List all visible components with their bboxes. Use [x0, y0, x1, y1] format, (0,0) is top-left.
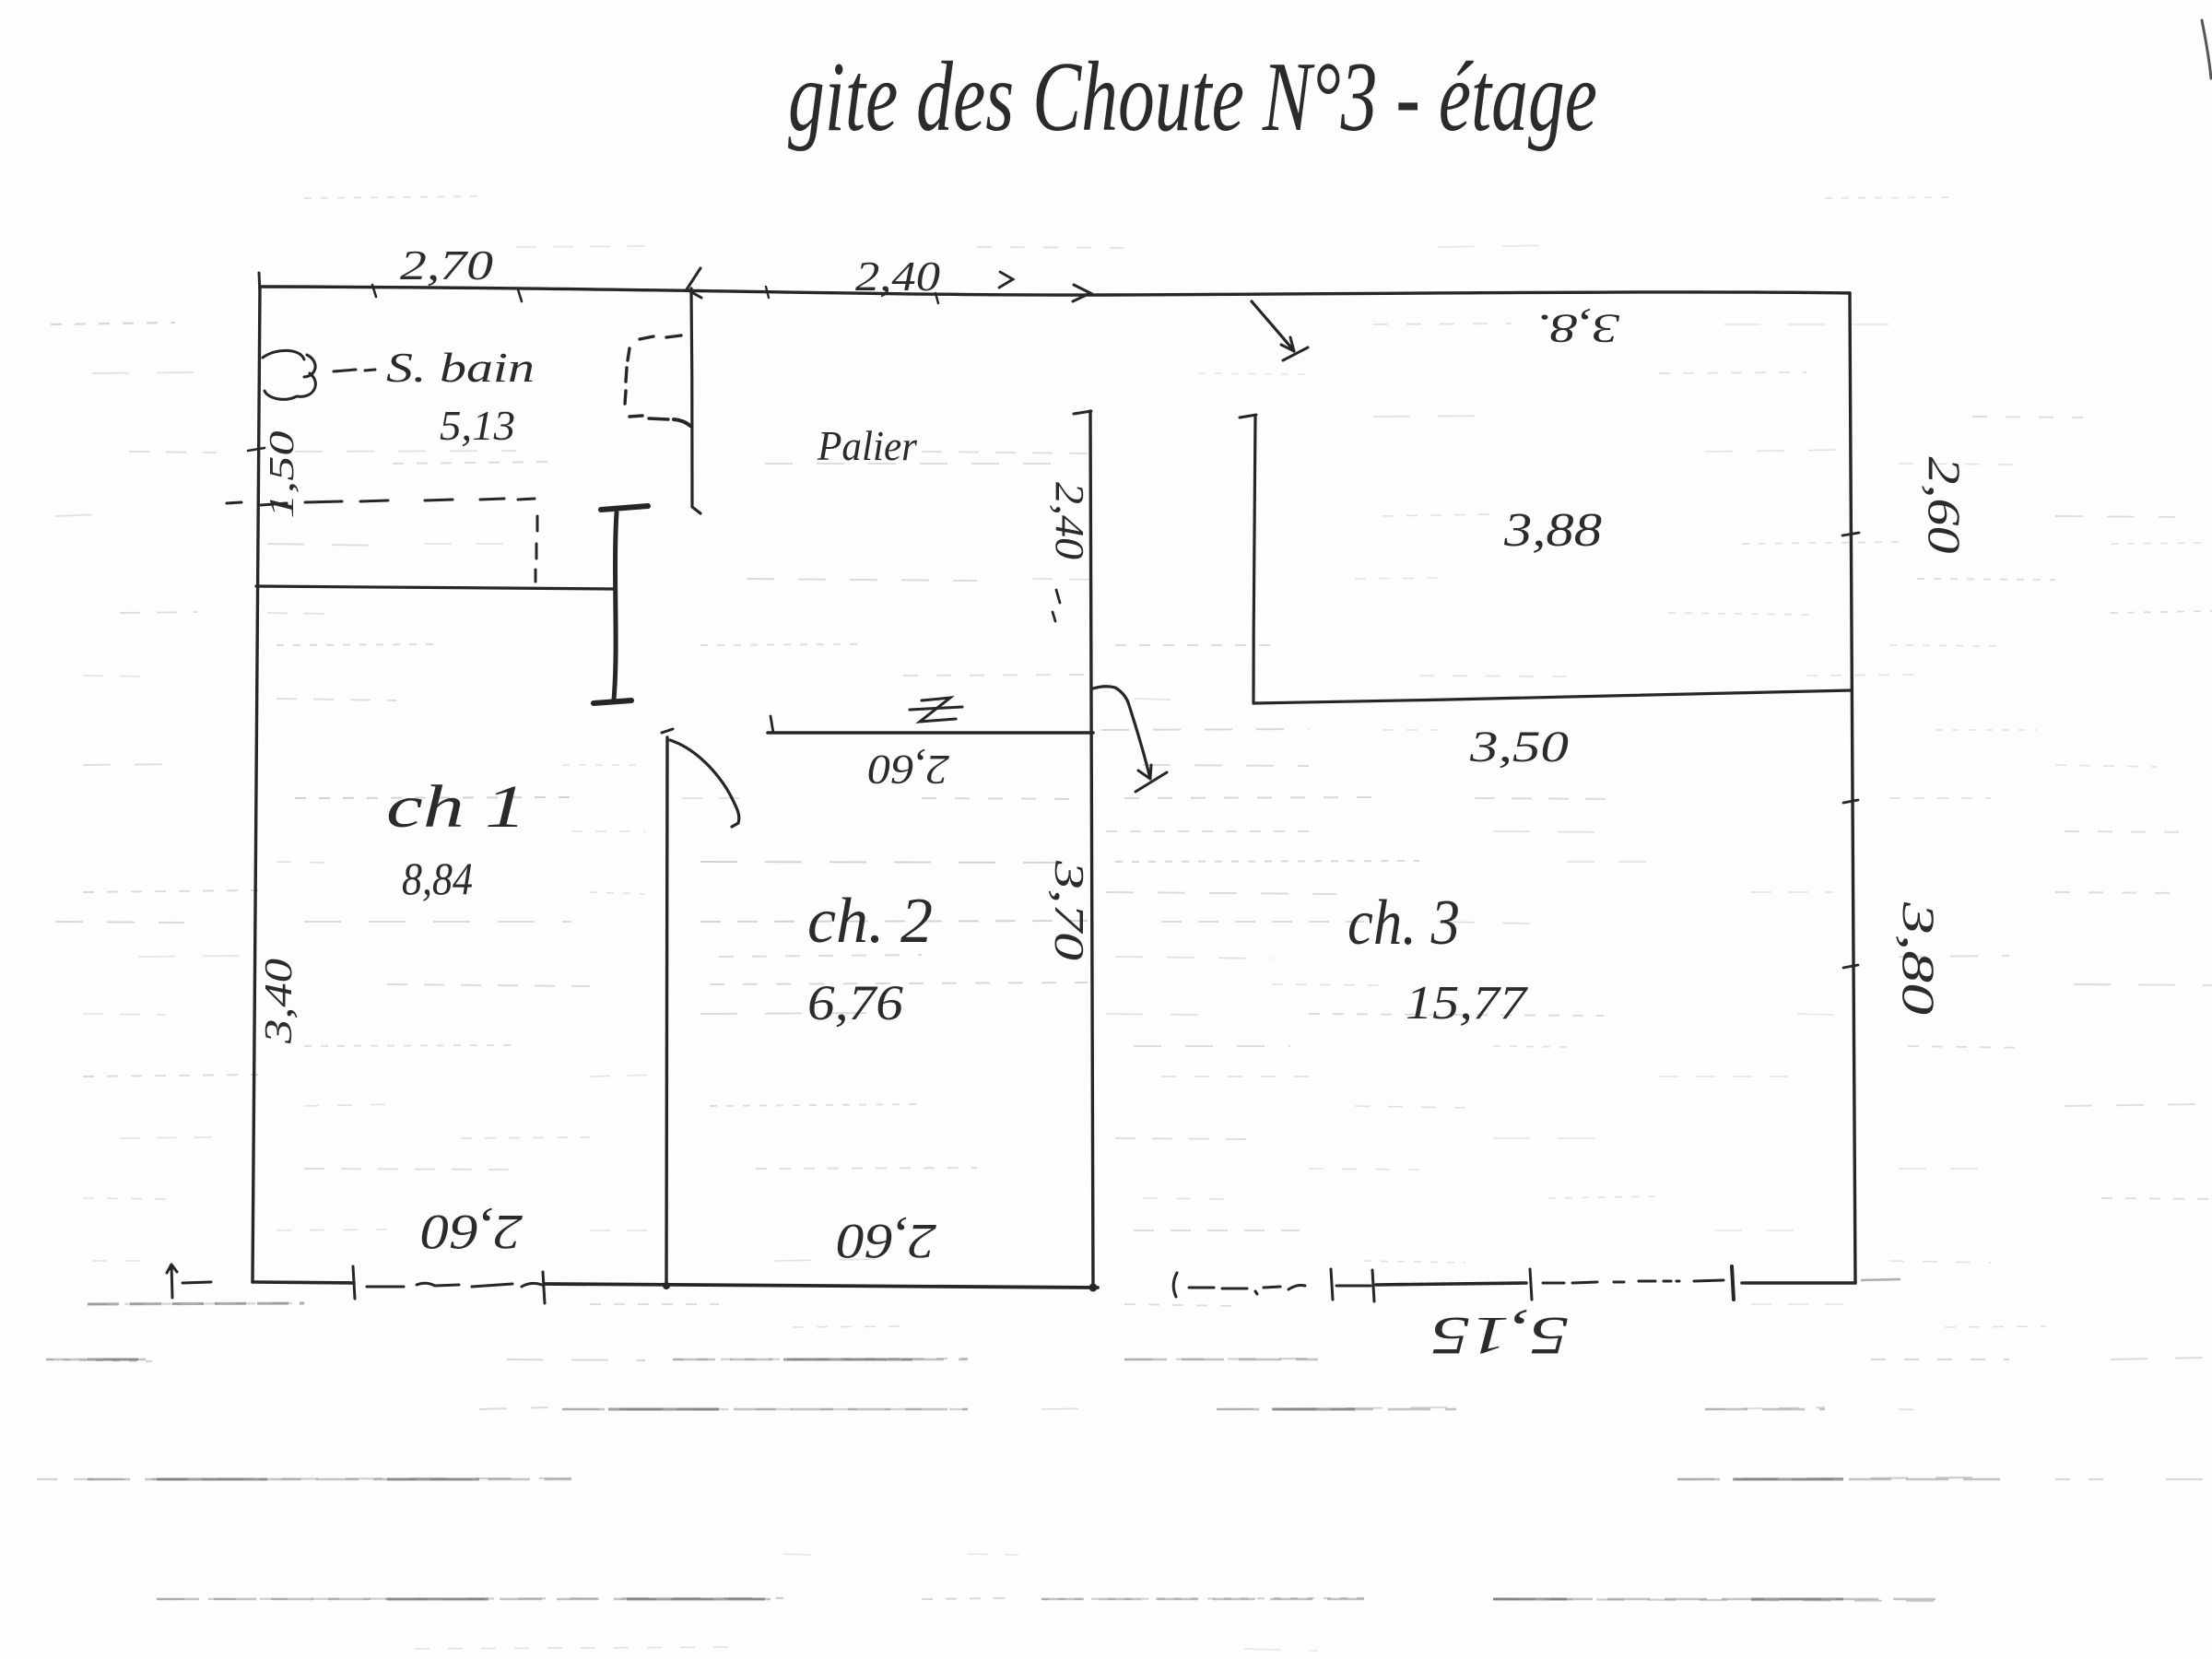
- svg-text:3,40: 3,40: [258, 959, 300, 1044]
- svg-text:3,88: 3,88: [1503, 504, 1602, 557]
- svg-text:8,84: 8,84: [402, 853, 473, 904]
- svg-text:ch 1: ch 1: [386, 773, 526, 841]
- svg-text:ch. 2: ch. 2: [807, 886, 933, 957]
- svg-text:2,60: 2,60: [1919, 457, 1971, 554]
- svg-text:15,77: 15,77: [1406, 977, 1528, 1030]
- svg-text:Palier: Palier: [817, 422, 918, 469]
- svg-text:ch. 3: ch. 3: [1347, 888, 1460, 959]
- svg-text:5,15: 5,15: [1430, 1306, 1569, 1366]
- svg-text:3,80: 3,80: [1893, 901, 1945, 1015]
- svg-text:2,40: 2,40: [1047, 482, 1092, 559]
- svg-text:3,50: 3,50: [1469, 723, 1569, 771]
- svg-text:3,8.: 3,8.: [1536, 306, 1620, 351]
- svg-text:2,40: 2,40: [855, 253, 940, 300]
- svg-text:5,13: 5,13: [440, 402, 515, 449]
- svg-text:2,60: 2,60: [837, 1214, 936, 1269]
- svg-text:S. bain: S. bain: [386, 344, 535, 391]
- svg-text:6,76: 6,76: [807, 975, 903, 1030]
- svg-text:2,60: 2,60: [868, 747, 949, 794]
- svg-text:2,60: 2,60: [421, 1205, 523, 1260]
- svg-text:gite des Choute N°3 - étage: gite des Choute N°3 - étage: [788, 42, 1597, 152]
- svg-text:3,70: 3,70: [1046, 860, 1093, 960]
- svg-text:1,50: 1,50: [263, 431, 301, 519]
- svg-text:2,70: 2,70: [400, 241, 493, 288]
